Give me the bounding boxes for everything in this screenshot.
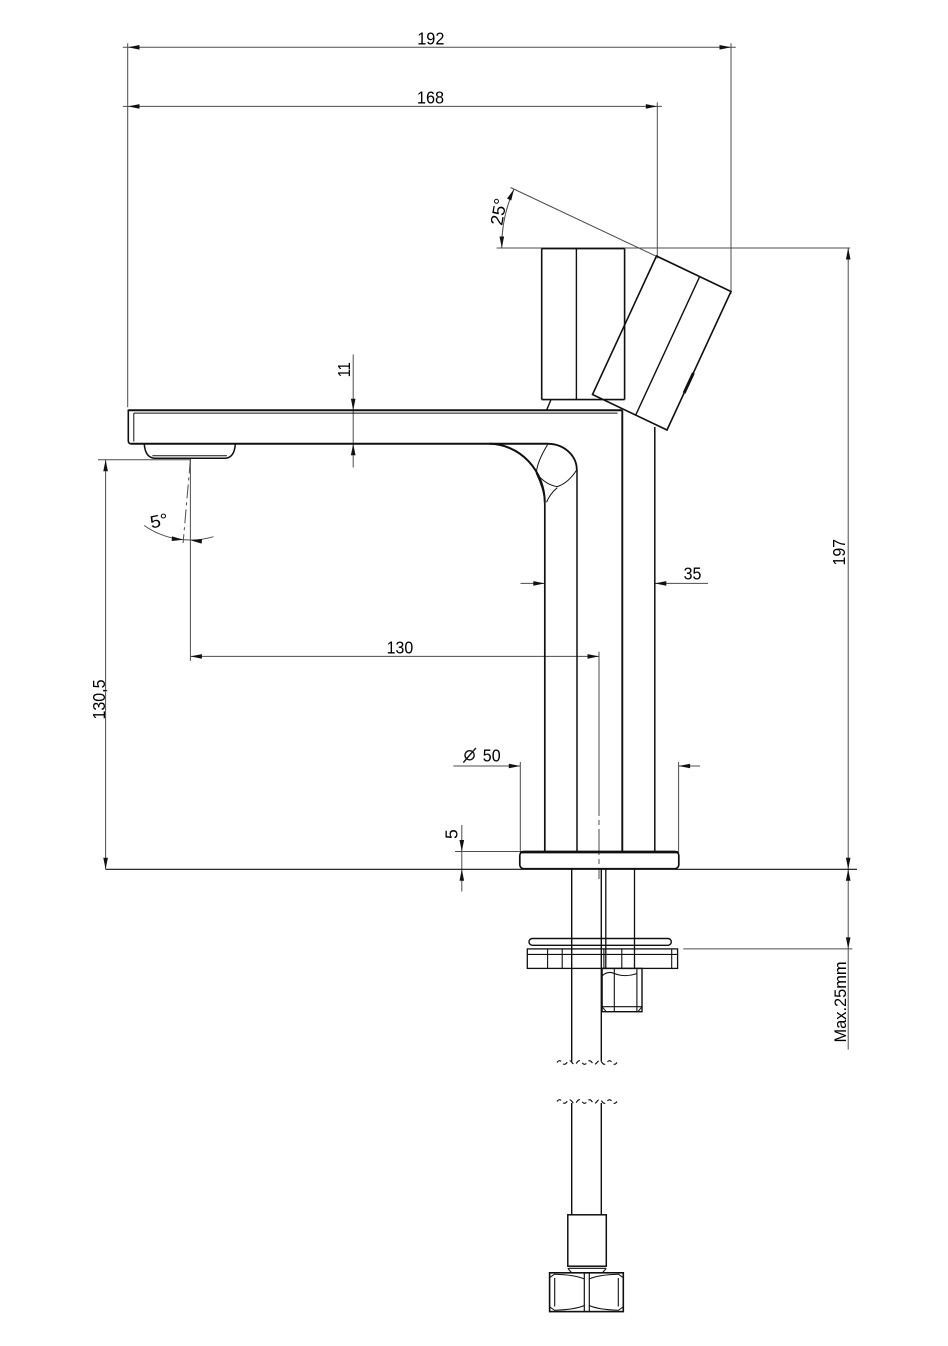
svg-text:5: 5 [442, 829, 462, 839]
svg-text:5°: 5° [148, 509, 170, 532]
svg-text:Max.25mm: Max.25mm [832, 962, 850, 1043]
svg-text:11: 11 [334, 362, 354, 377]
svg-text:130: 130 [387, 637, 414, 657]
svg-text:130,5: 130,5 [89, 680, 109, 720]
svg-text:168: 168 [417, 88, 444, 108]
svg-text:50: 50 [483, 746, 501, 766]
svg-text:35: 35 [684, 563, 702, 583]
svg-text:25°: 25° [486, 197, 510, 227]
svg-text:192: 192 [417, 29, 444, 49]
svg-text:197: 197 [829, 539, 849, 566]
